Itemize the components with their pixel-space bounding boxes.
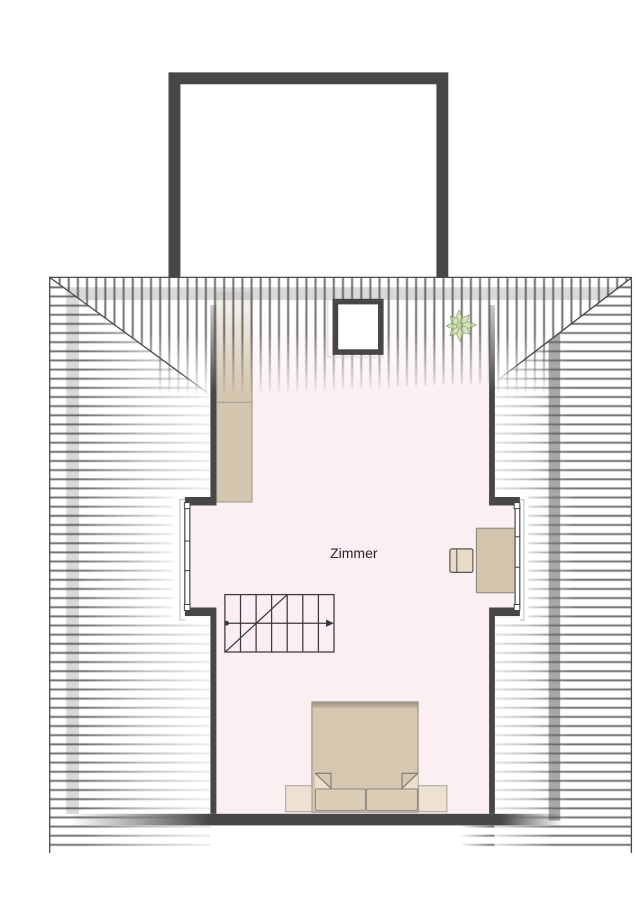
svg-text:Zimmer: Zimmer (330, 545, 378, 561)
